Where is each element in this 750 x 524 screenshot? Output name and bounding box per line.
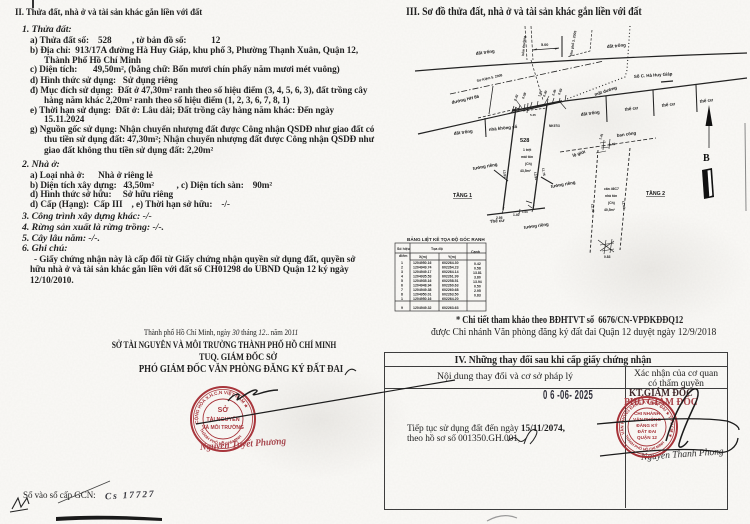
svg-text:tường riêng: tường riêng	[523, 222, 549, 230]
svg-text:6: 6	[401, 284, 403, 288]
svg-text:602264.14: 602264.14	[442, 270, 459, 274]
svg-text:1.40: 1.40	[513, 213, 520, 217]
svg-text:528: 528	[520, 138, 529, 144]
svg-text:1204935.16: 1204935.16	[413, 279, 432, 283]
svg-text:4: 4	[401, 275, 403, 279]
svg-text:NK97/3: NK97/3	[549, 124, 560, 128]
svg-text:1.00: 1.00	[522, 210, 528, 214]
svg-text:1 trệt: 1 trệt	[523, 148, 532, 152]
svg-text:0.83: 0.83	[474, 294, 481, 298]
svg-text:1204948.94: 1204948.94	[413, 284, 432, 288]
svg-text:7: 7	[401, 288, 403, 292]
svg-text:1204950.16: 1204950.16	[413, 297, 432, 301]
svg-text:602258.51: 602258.51	[442, 279, 459, 283]
svg-text:1204949.17: 1204949.17	[413, 270, 432, 274]
svg-text:SỞ: SỞ	[218, 405, 229, 414]
svg-text:0.50: 0.50	[474, 285, 481, 289]
svg-text:602261.99: 602261.99	[442, 275, 459, 279]
svg-text:tường riêng: tường riêng	[472, 162, 498, 171]
svg-text:VÀ MÔI TRƯỜNG: VÀ MÔI TRƯỜNG	[202, 423, 244, 431]
svg-text:Số hiệu: Số hiệu	[397, 247, 410, 251]
svg-text:0.58: 0.58	[474, 267, 481, 271]
svg-text:TẦNG 1: TẦNG 1	[453, 192, 472, 199]
svg-text:602263.63: 602263.63	[442, 306, 459, 310]
svg-text:1204949.74: 1204949.74	[413, 266, 432, 270]
svg-text:Sơ Kiệm 5. 2008: Sơ Kiệm 5. 2008	[476, 73, 503, 83]
svg-text:602264.23: 602264.23	[442, 266, 459, 270]
svg-text:602264.20: 602264.20	[442, 297, 459, 301]
svg-text:13.94: 13.94	[533, 172, 538, 181]
svg-text:khu phố 3. 2005: khu phố 3. 2005	[569, 30, 577, 56]
svg-text:đất trống: đất trống	[453, 128, 473, 136]
svg-text:0.42: 0.42	[513, 94, 519, 102]
svg-text:đường HH 86: đường HH 86	[451, 94, 480, 105]
svg-text:(Ch): (Ch)	[525, 162, 532, 166]
svg-text:11.75: 11.75	[541, 168, 546, 177]
svg-text:2: 2	[401, 266, 403, 270]
svg-text:0.42: 0.42	[474, 262, 481, 266]
svg-text:13.81: 13.81	[473, 271, 482, 275]
svg-text:8: 8	[401, 293, 403, 297]
svg-text:Cạnh: Cạnh	[471, 250, 480, 254]
svg-text:13.94: 13.94	[473, 280, 482, 284]
svg-text:3.80: 3.80	[474, 276, 481, 280]
svg-text:B: B	[703, 153, 710, 164]
svg-text:11.43: 11.43	[621, 201, 626, 210]
svg-text:1: 1	[401, 297, 403, 301]
svg-text:5: 5	[401, 279, 403, 283]
svg-text:QUẬN 12: QUẬN 12	[637, 434, 657, 440]
svg-text:1204935.53: 1204935.53	[413, 275, 432, 279]
svg-text:(Ch): (Ch)	[608, 201, 615, 205]
svg-text:đất trống: đất trống	[607, 42, 627, 49]
svg-text:căn 46C7: căn 46C7	[604, 187, 619, 191]
svg-text:2.95: 2.95	[496, 216, 503, 220]
svg-text:602260.68: 602260.68	[442, 288, 459, 292]
svg-text:X(m): X(m)	[419, 255, 428, 259]
svg-text:ĐĂNG KÝ: ĐĂNG KÝ	[636, 422, 657, 428]
svg-text:đất trống: đất trống	[475, 48, 495, 56]
svg-text:3: 3	[401, 270, 403, 274]
svg-text:602260.63: 602260.63	[442, 284, 459, 288]
svg-text:1204949.32: 1204949.32	[413, 306, 432, 310]
svg-text:0.58: 0.58	[521, 92, 527, 100]
svg-text:1204950.01: 1204950.01	[413, 293, 432, 297]
svg-text:0.83: 0.83	[604, 255, 611, 259]
svg-text:2.95: 2.95	[474, 289, 481, 293]
svg-text:thế cư: thế cư	[699, 97, 714, 104]
svg-text:43,5m²: 43,5m²	[520, 169, 532, 173]
svg-text:1: 1	[401, 261, 403, 265]
svg-text:1204950.16: 1204950.16	[413, 261, 432, 265]
svg-text:ĐẤT ĐAI: ĐẤT ĐAI	[638, 428, 657, 434]
svg-text:điểm: điểm	[399, 254, 407, 258]
svg-text:CHI NHÁNH: CHI NHÁNH	[634, 410, 660, 416]
svg-text:5.00: 5.00	[541, 43, 548, 47]
svg-text:tường riêng: tường riêng	[550, 180, 576, 189]
svg-text:TẦNG 2: TẦNG 2	[646, 190, 665, 197]
svg-text:mái tôn: mái tôn	[521, 155, 533, 159]
svg-text:nhà tôn: nhà tôn	[605, 194, 617, 198]
svg-text:Số C. Hà Huy Giáp: Số C. Hà Huy Giáp	[634, 71, 673, 79]
svg-text:BẢNG LIỆT KÊ TỌA ĐỘ GÓC RANH: BẢNG LIỆT KÊ TỌA ĐỘ GÓC RANH	[407, 235, 485, 242]
svg-text:40,5m²: 40,5m²	[604, 208, 616, 212]
svg-text:5.45: 5.45	[530, 113, 536, 117]
svg-text:9: 9	[401, 306, 403, 310]
svg-text:602263.50: 602263.50	[442, 293, 459, 297]
svg-text:602264.30: 602264.30	[442, 261, 459, 265]
svg-text:1204949.38: 1204949.38	[413, 288, 432, 292]
svg-text:Y(m): Y(m)	[448, 255, 457, 259]
svg-text:13.78: 13.78	[590, 204, 595, 213]
svg-text:Tọa độ: Tọa độ	[431, 247, 444, 251]
